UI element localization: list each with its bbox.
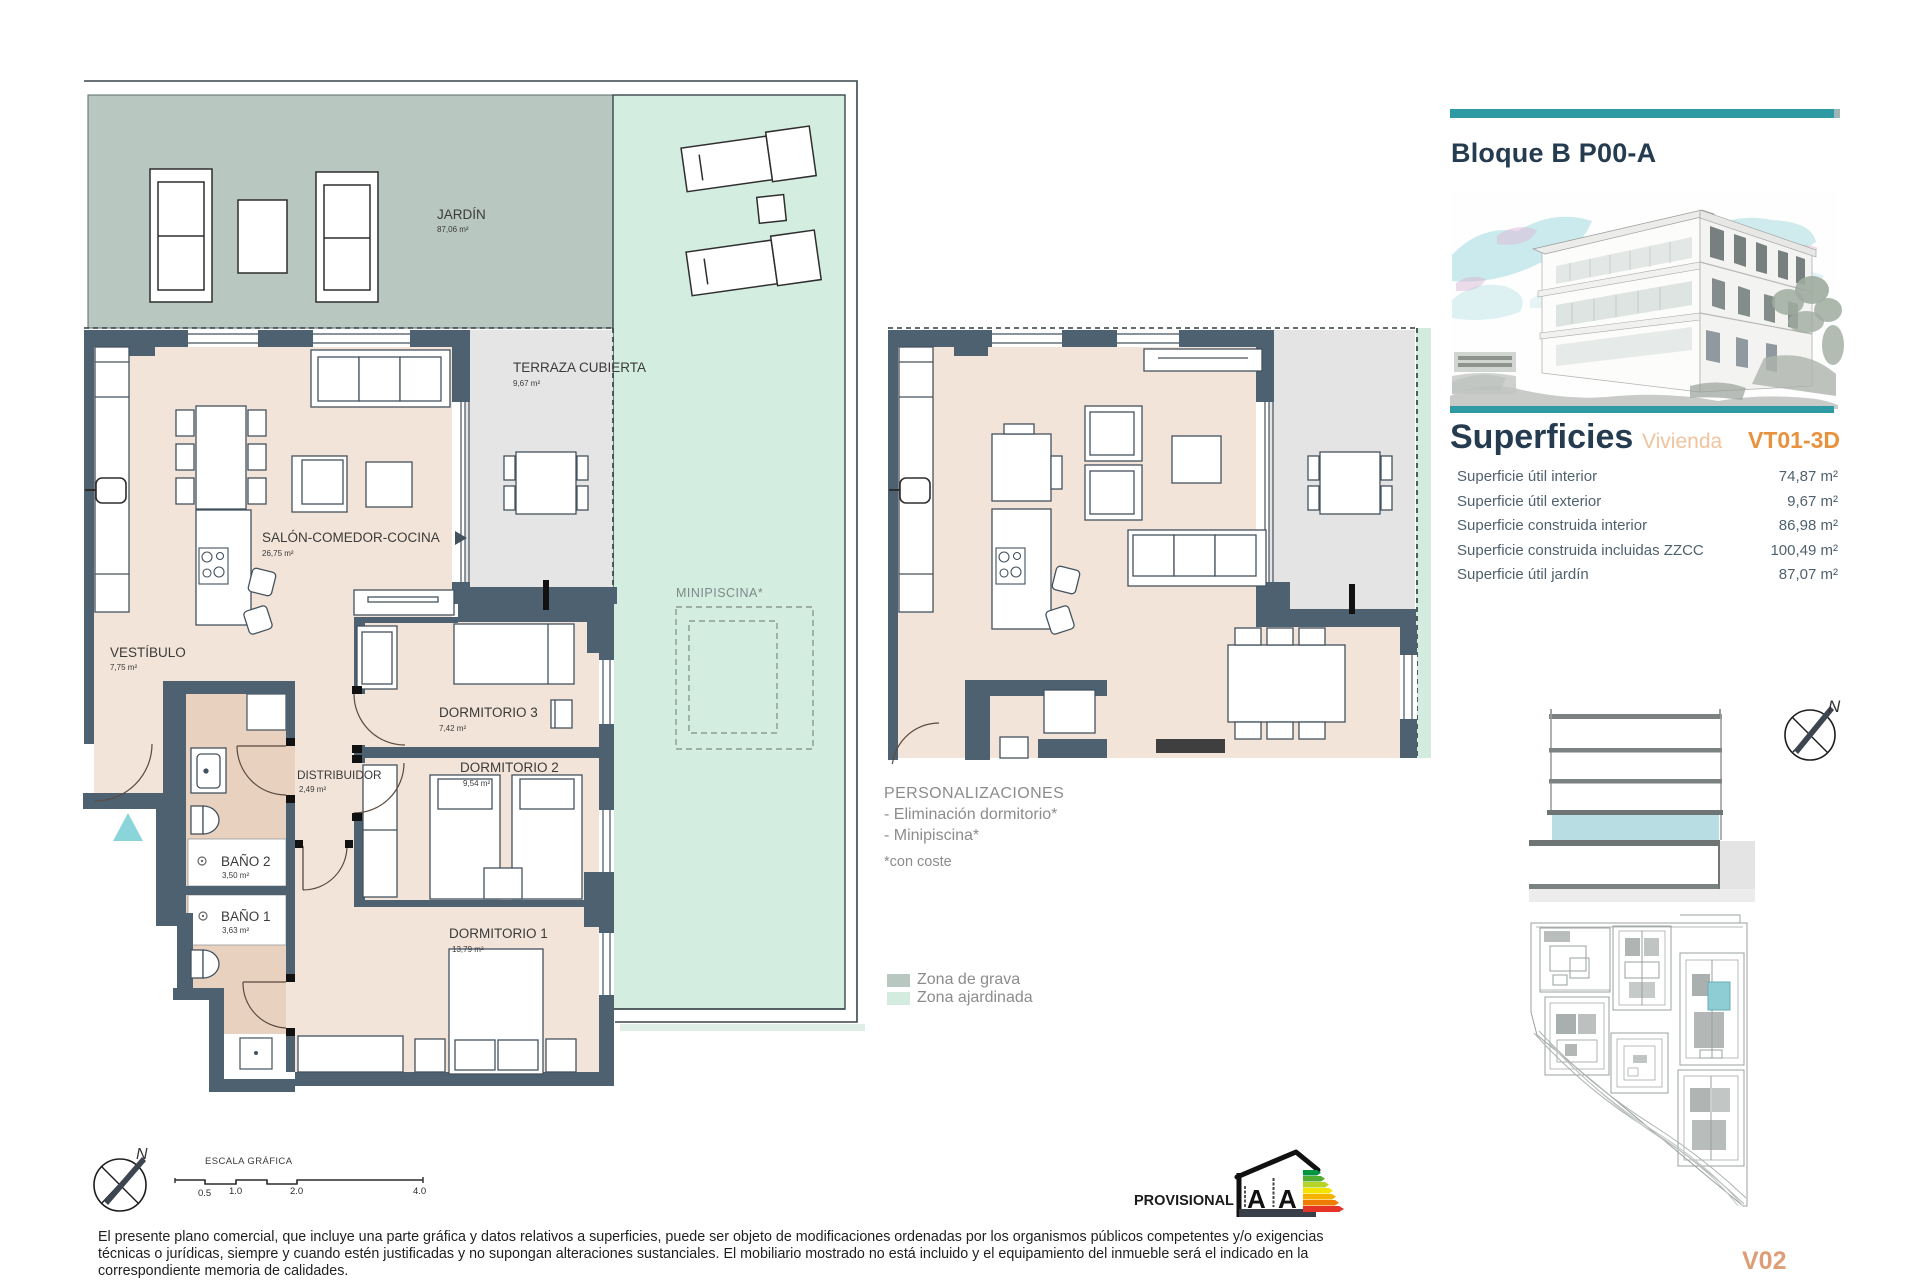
svg-text:0.5: 0.5 (198, 1188, 211, 1199)
svg-text:9,67 m²: 9,67 m² (513, 379, 540, 388)
svg-text:4.0: 4.0 (413, 1186, 426, 1197)
svg-text:ESCALA GRÁFICA: ESCALA GRÁFICA (205, 1156, 293, 1167)
svg-text:MINIPISCINA*: MINIPISCINA* (676, 586, 763, 600)
svg-text:DORMITORIO 2: DORMITORIO 2 (460, 760, 559, 775)
svg-text:3,50 m²: 3,50 m² (222, 871, 249, 880)
svg-text:DISTRIBUIDOR: DISTRIBUIDOR (297, 768, 382, 782)
svg-text:2.0: 2.0 (290, 1186, 303, 1197)
svg-text:BAÑO 2: BAÑO 2 (221, 854, 271, 869)
svg-text:3,63 m²: 3,63 m² (222, 926, 249, 935)
svg-text:A: A (1278, 1184, 1297, 1214)
svg-text:87,06 m²: 87,06 m² (437, 225, 469, 234)
svg-text:26,75 m²: 26,75 m² (262, 549, 294, 558)
svg-text:7,75 m²: 7,75 m² (110, 663, 137, 672)
svg-text:1.0: 1.0 (229, 1186, 242, 1197)
svg-text:N: N (1828, 697, 1841, 716)
svg-text:BAÑO 1: BAÑO 1 (221, 909, 271, 924)
svg-text:VESTÍBULO: VESTÍBULO (110, 645, 186, 660)
svg-text:TERRAZA CUBIERTA: TERRAZA CUBIERTA (513, 360, 646, 375)
svg-text:2,49 m²: 2,49 m² (299, 785, 326, 794)
svg-text:9,54 m²: 9,54 m² (463, 779, 490, 788)
svg-text:A: A (1247, 1184, 1266, 1214)
svg-text:N: N (136, 1146, 148, 1163)
svg-text:DORMITORIO 3: DORMITORIO 3 (439, 705, 538, 720)
svg-text:7,42 m²: 7,42 m² (439, 724, 466, 733)
svg-text:JARDÍN: JARDÍN (437, 207, 486, 222)
svg-text:13,79 m²: 13,79 m² (452, 945, 484, 954)
svg-text:DORMITORIO 1: DORMITORIO 1 (449, 926, 548, 941)
svg-text:SALÓN-COMEDOR-COCINA: SALÓN-COMEDOR-COCINA (262, 530, 440, 545)
